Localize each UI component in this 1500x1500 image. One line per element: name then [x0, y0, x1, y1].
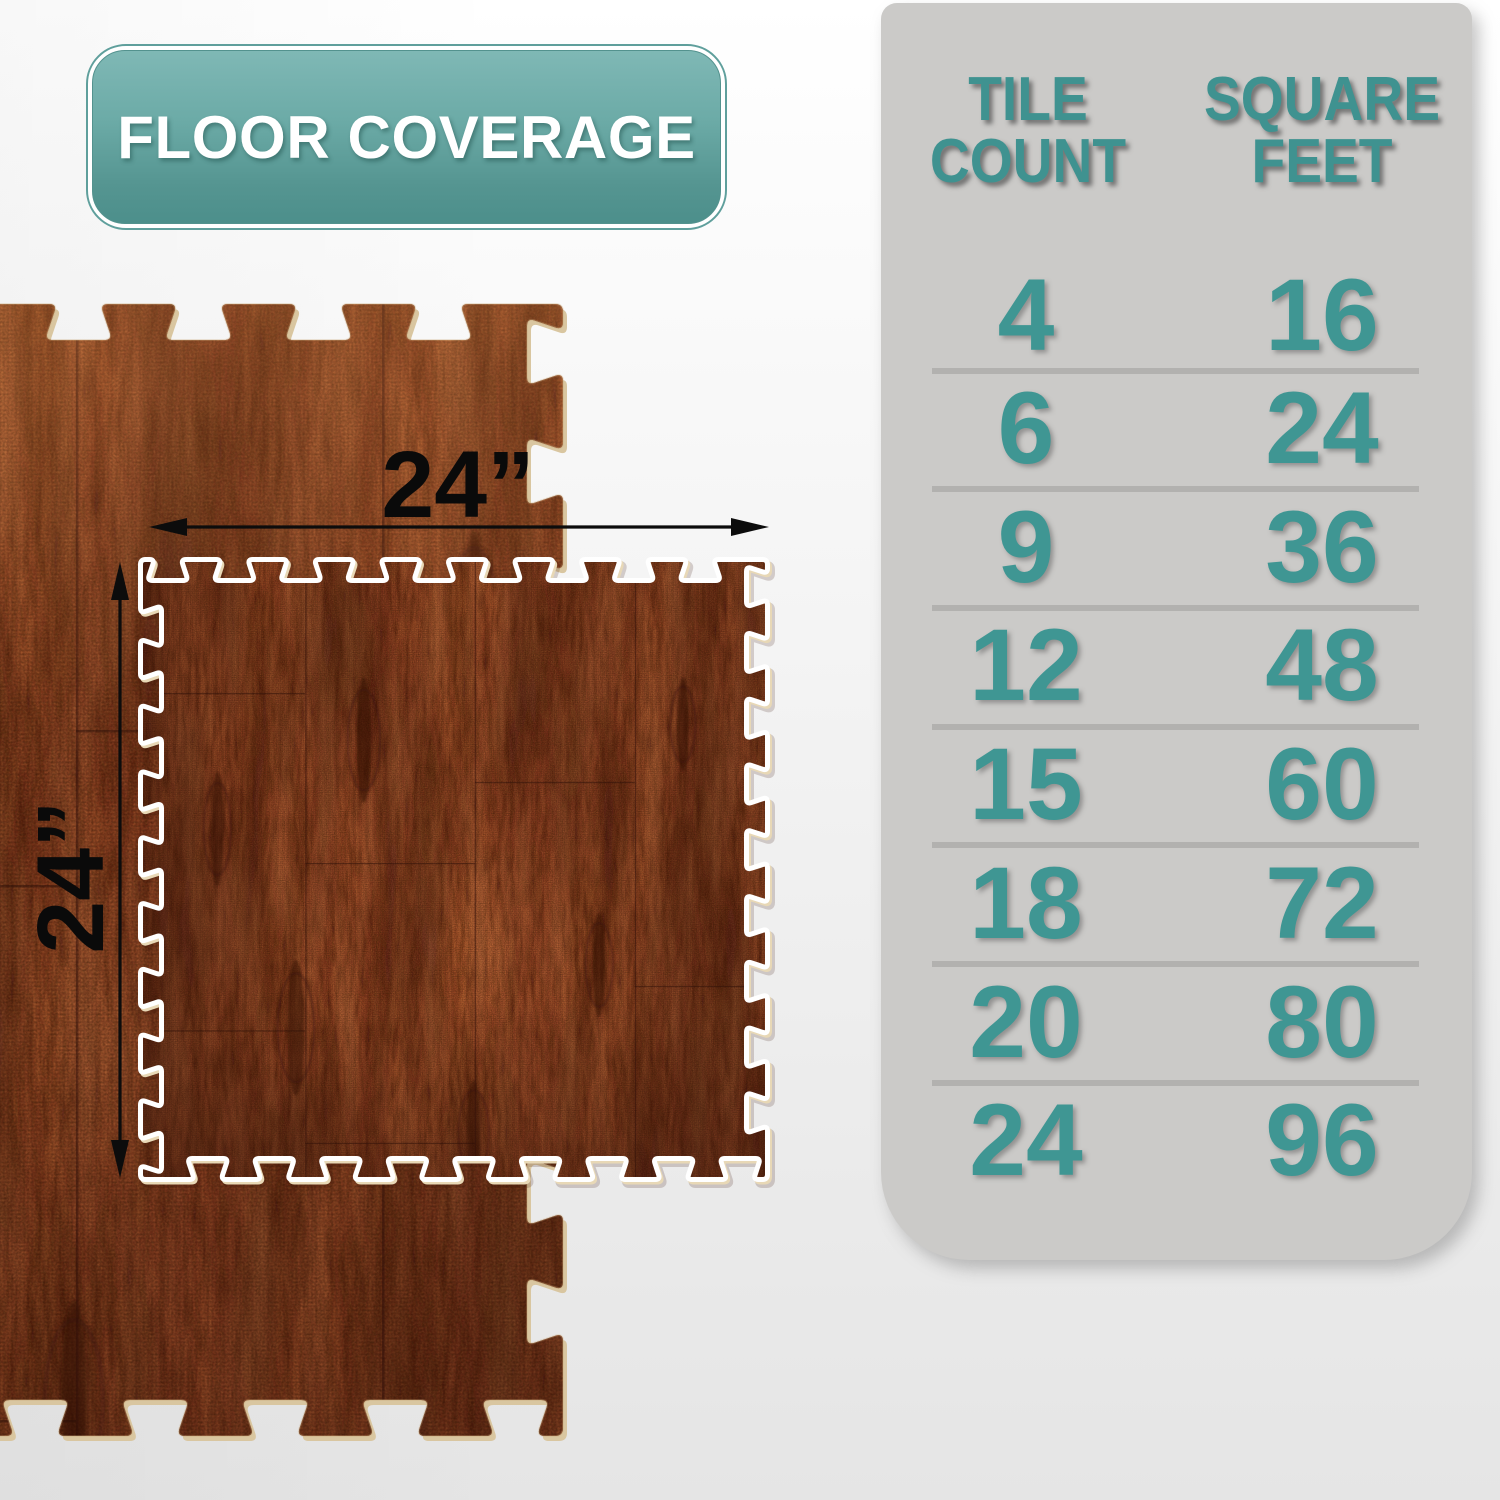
svg-text:24”: 24”: [381, 432, 534, 538]
svg-text:24”: 24”: [18, 800, 124, 953]
